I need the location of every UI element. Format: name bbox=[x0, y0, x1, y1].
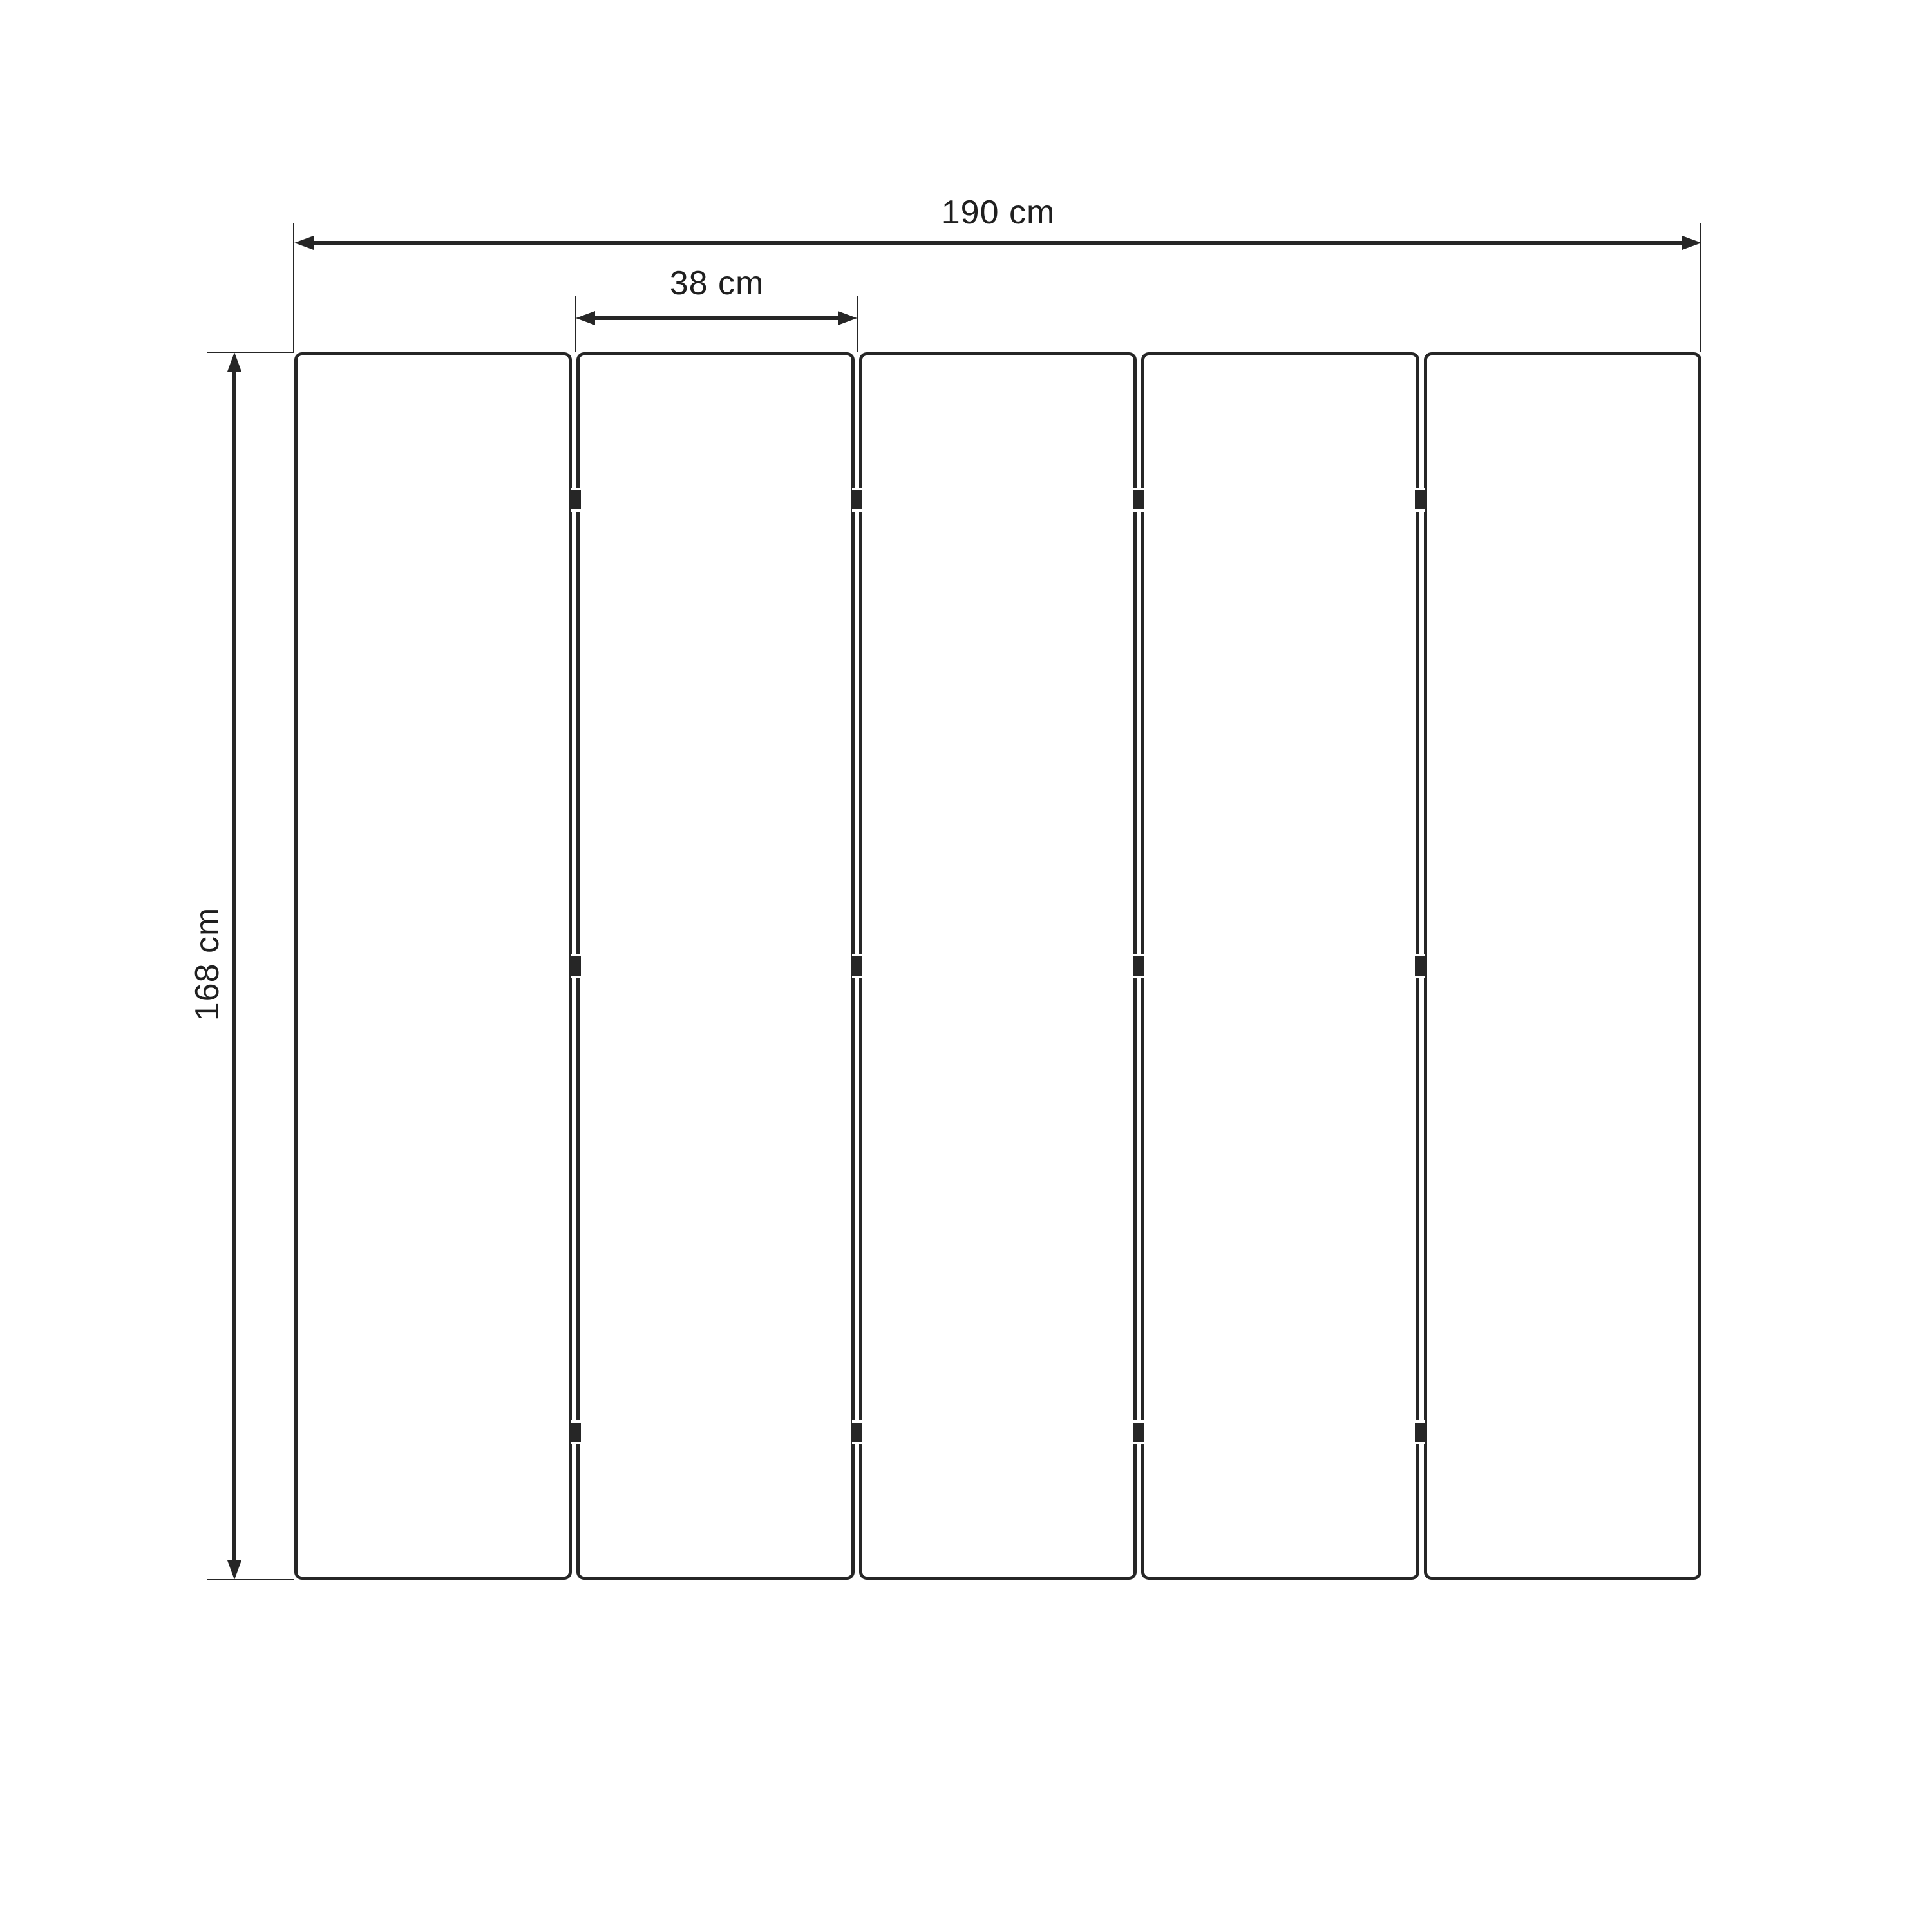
arrowhead-left-icon bbox=[294, 236, 314, 250]
extension-line bbox=[1700, 223, 1701, 352]
dimension-line bbox=[232, 372, 236, 1560]
extension-line bbox=[207, 1579, 294, 1580]
dimension-line bbox=[314, 241, 1682, 245]
panel-5 bbox=[1424, 352, 1701, 1580]
arrowhead-down-icon bbox=[227, 1560, 241, 1580]
panel-4 bbox=[1141, 352, 1419, 1580]
dimension-line bbox=[595, 316, 838, 320]
panel-2 bbox=[576, 352, 854, 1580]
hinge bbox=[852, 954, 862, 978]
extension-line bbox=[207, 352, 294, 353]
hinge bbox=[1415, 954, 1425, 978]
hinge bbox=[1133, 1420, 1144, 1444]
arrowhead-left-icon bbox=[576, 311, 595, 325]
dimension-drawing-canvas: 190 cm 38 cm 168 cm bbox=[0, 0, 1932, 1932]
hinge bbox=[571, 488, 581, 512]
arrowhead-up-icon bbox=[227, 352, 241, 372]
height-label: 168 cm bbox=[191, 907, 224, 1021]
extension-line bbox=[857, 296, 858, 352]
panel-width-dimension-line bbox=[576, 310, 857, 326]
hinge bbox=[1133, 954, 1144, 978]
extension-line bbox=[575, 296, 576, 352]
panel-1 bbox=[294, 352, 572, 1580]
hinge bbox=[1133, 488, 1144, 512]
hinge bbox=[571, 1420, 581, 1444]
height-dimension-line bbox=[227, 352, 242, 1580]
hinge bbox=[852, 488, 862, 512]
arrowhead-right-icon bbox=[838, 311, 857, 325]
hinge bbox=[852, 1420, 862, 1444]
panel-3 bbox=[859, 352, 1137, 1580]
folding-screen bbox=[294, 352, 1701, 1580]
hinge bbox=[1415, 1420, 1425, 1444]
hinge bbox=[571, 954, 581, 978]
hinge bbox=[1415, 488, 1425, 512]
total-width-dimension-line bbox=[294, 235, 1701, 251]
panel-width-label: 38 cm bbox=[670, 267, 764, 300]
extension-line bbox=[293, 223, 294, 352]
arrowhead-right-icon bbox=[1682, 236, 1701, 250]
total-width-label: 190 cm bbox=[942, 196, 1056, 229]
